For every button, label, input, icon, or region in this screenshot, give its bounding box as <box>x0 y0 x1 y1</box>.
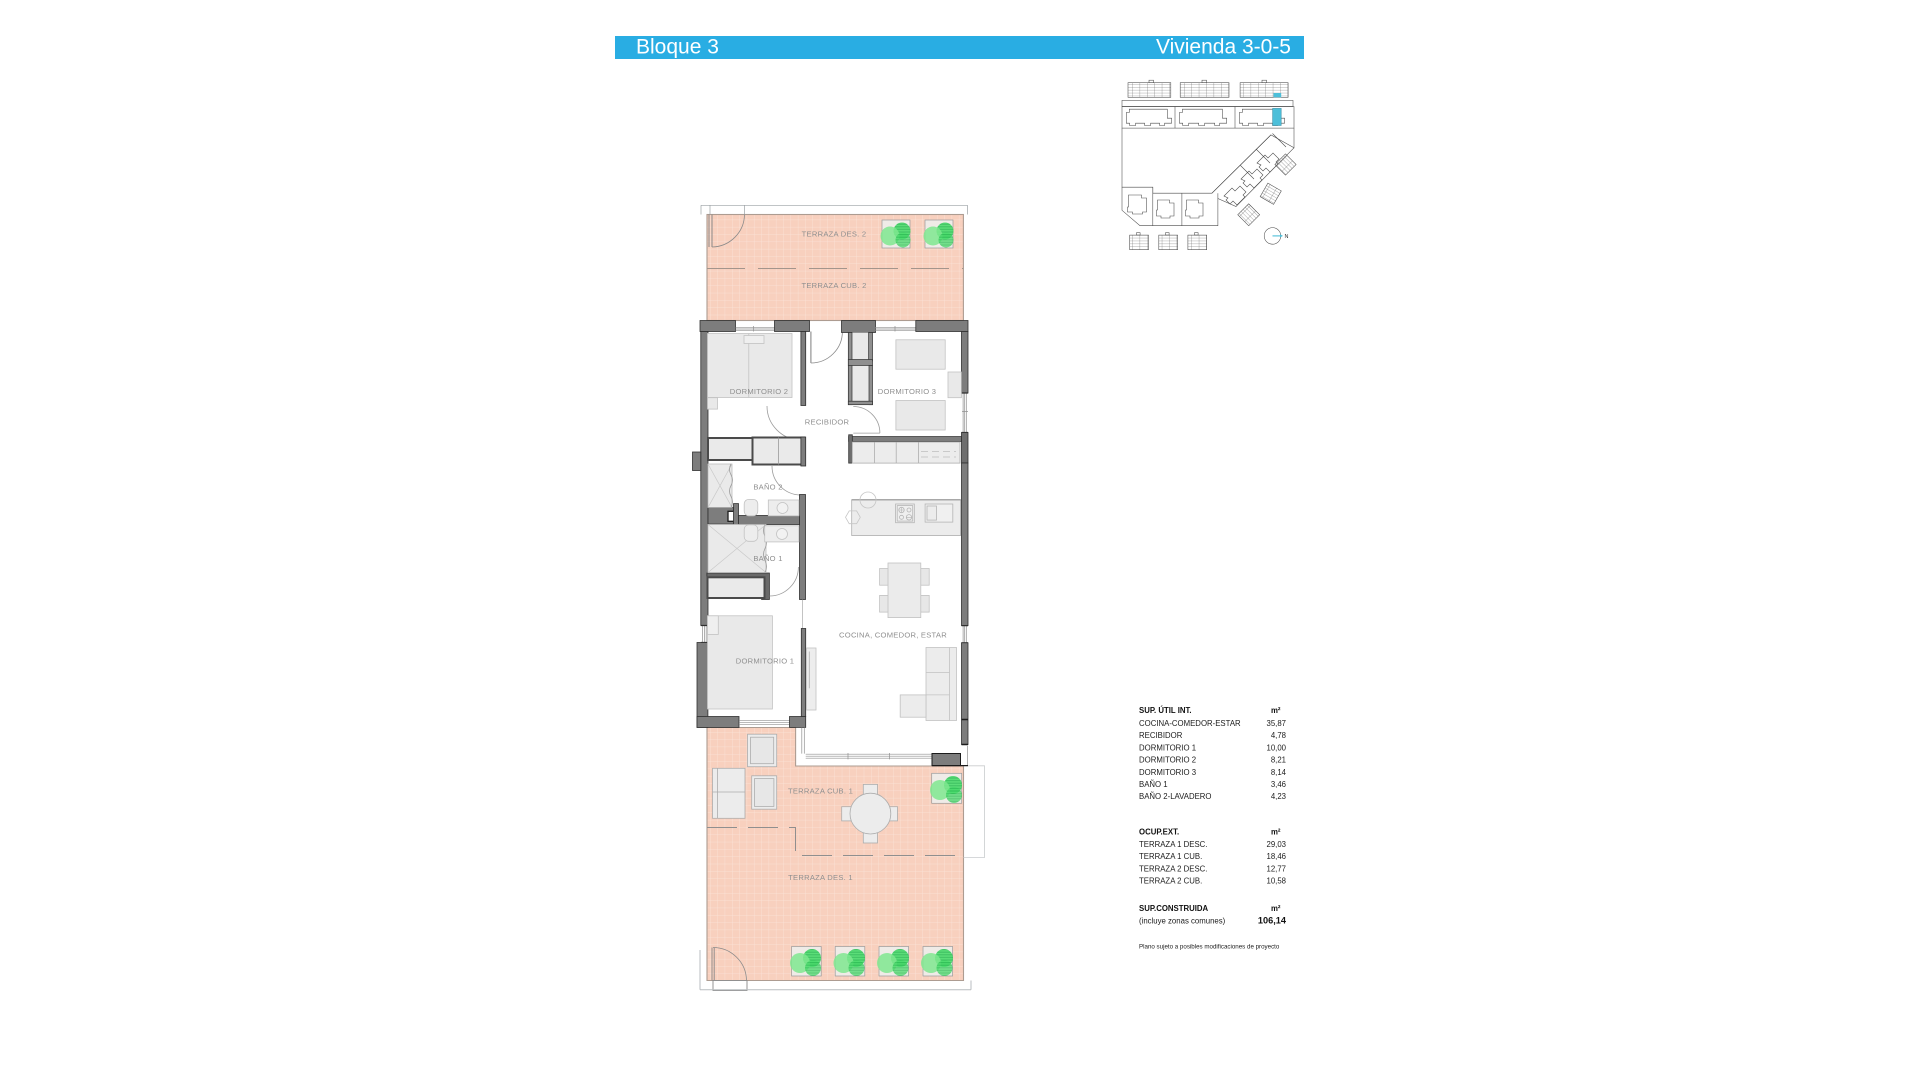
svg-text:TERRAZA CUB. 2: TERRAZA CUB. 2 <box>801 281 866 290</box>
svg-text:Vivienda 3-0-5: Vivienda 3-0-5 <box>1156 36 1291 59</box>
svg-text:8,14: 8,14 <box>1271 768 1287 777</box>
svg-text:12,77: 12,77 <box>1266 864 1286 873</box>
svg-text:4,78: 4,78 <box>1271 731 1286 740</box>
svg-text:35,87: 35,87 <box>1266 719 1286 728</box>
svg-text:m²: m² <box>1271 904 1281 913</box>
svg-text:m²: m² <box>1271 828 1281 837</box>
svg-text:3,46: 3,46 <box>1271 780 1286 789</box>
svg-text:DORMITORIO 1: DORMITORIO 1 <box>736 657 795 666</box>
svg-text:BAÑO 2: BAÑO 2 <box>753 483 782 492</box>
svg-text:TERRAZA 1 DESC.: TERRAZA 1 DESC. <box>1139 840 1207 849</box>
svg-text:29,03: 29,03 <box>1266 840 1286 849</box>
svg-text:DORMITORIO 2: DORMITORIO 2 <box>1139 756 1196 765</box>
svg-text:DORMITORIO 2: DORMITORIO 2 <box>730 387 789 396</box>
svg-text:RECIBIDOR: RECIBIDOR <box>805 418 850 427</box>
svg-text:COCINA-COMEDOR-ESTAR: COCINA-COMEDOR-ESTAR <box>1139 719 1241 728</box>
svg-text:TERRAZA 2 DESC.: TERRAZA 2 DESC. <box>1139 864 1207 873</box>
svg-text:106,14: 106,14 <box>1258 916 1287 926</box>
svg-text:(incluye zonas comunes): (incluye zonas comunes) <box>1139 917 1226 926</box>
svg-text:BAÑO 1: BAÑO 1 <box>1139 780 1168 789</box>
svg-text:BAÑO 2-LAVADERO: BAÑO 2-LAVADERO <box>1139 792 1212 801</box>
svg-text:Bloque 3: Bloque 3 <box>636 36 719 59</box>
svg-text:TERRAZA CUB. 1: TERRAZA CUB. 1 <box>788 787 853 796</box>
svg-text:TERRAZA 2 CUB.: TERRAZA 2 CUB. <box>1139 877 1202 886</box>
svg-text:SUP. ÚTIL INT.: SUP. ÚTIL INT. <box>1139 706 1192 715</box>
svg-text:10,00: 10,00 <box>1266 743 1286 752</box>
svg-text:OCUP.EXT.: OCUP.EXT. <box>1139 828 1179 837</box>
svg-text:N: N <box>1285 234 1289 240</box>
svg-text:BAÑO 1: BAÑO 1 <box>753 554 782 563</box>
svg-text:4,23: 4,23 <box>1271 792 1286 801</box>
svg-text:TERRAZA DES. 2: TERRAZA DES. 2 <box>802 230 867 239</box>
svg-text:TERRAZA 1 CUB.: TERRAZA 1 CUB. <box>1139 852 1202 861</box>
svg-text:SUP.CONSTRUIDA: SUP.CONSTRUIDA <box>1139 904 1209 913</box>
svg-text:18,46: 18,46 <box>1266 852 1286 861</box>
svg-text:m²: m² <box>1271 706 1281 715</box>
svg-text:Plano sujeto a posibles modifi: Plano sujeto a posibles modificaciones d… <box>1139 944 1280 951</box>
svg-text:DORMITORIO 3: DORMITORIO 3 <box>1139 768 1196 777</box>
svg-text:TERRAZA DES. 1: TERRAZA DES. 1 <box>788 873 853 882</box>
svg-text:DORMITORIO 1: DORMITORIO 1 <box>1139 743 1196 752</box>
svg-text:RECIBIDOR: RECIBIDOR <box>1139 731 1183 740</box>
svg-text:10,58: 10,58 <box>1266 877 1286 886</box>
svg-text:COCINA, COMEDOR, ESTAR: COCINA, COMEDOR, ESTAR <box>839 631 947 640</box>
svg-text:8,21: 8,21 <box>1271 756 1286 765</box>
svg-text:DORMITORIO 3: DORMITORIO 3 <box>878 387 937 396</box>
